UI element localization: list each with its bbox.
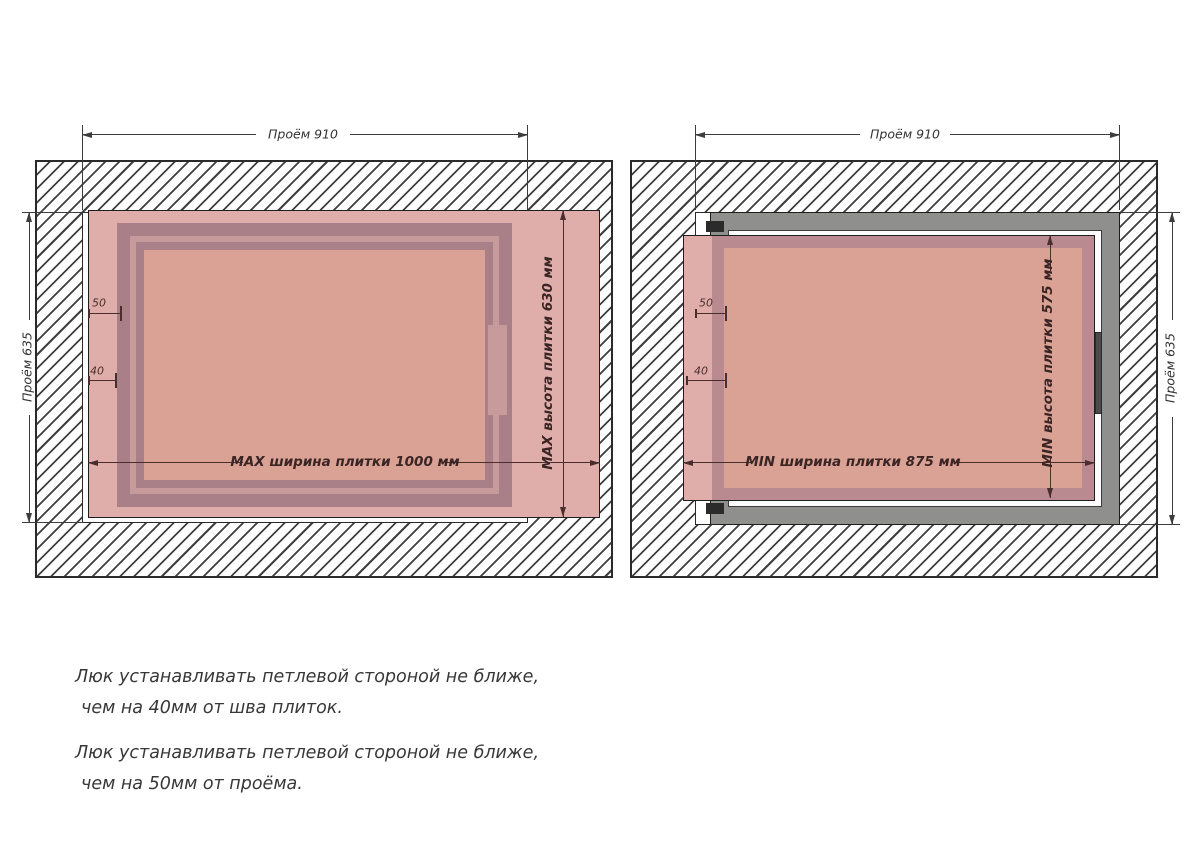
dim-label-tile-width: MIN ширина плитки 875 мм [745,454,960,470]
arrow-right-icon [590,460,600,466]
dim-line [695,313,726,314]
hinge-bottom [706,503,724,514]
arrow-down-icon [1169,515,1175,525]
dim-line [1172,212,1173,320]
dim-label-tile-height: MIN высота плитки 575 мм [1040,259,1056,468]
arrow-right-icon [1110,132,1120,138]
dim-label-opening-width: Проём 910 [870,127,940,142]
tick [725,306,727,321]
dim-line [1172,417,1173,525]
note-hinge-seam: Люк устанавливать петлевой стороной не б… [75,662,539,724]
door-panel [144,250,485,480]
tick [88,376,90,385]
arrow-left-icon [683,460,693,466]
tick [120,306,122,321]
door-frame-inner-band [136,242,493,488]
arrow-left-icon [695,132,705,138]
arrow-up-icon [560,210,566,220]
tick [686,376,688,385]
arrow-left-icon [88,460,98,466]
arrow-down-icon [26,513,32,523]
dim-line [88,462,243,463]
note-line: Люк устанавливать петлевой стороной не б… [75,738,539,769]
dim-line [563,210,564,517]
dim-label-opening-height: Проём 635 [1163,333,1178,403]
dim-line [683,462,753,463]
dim-line [447,462,600,463]
door-handle [1095,332,1102,414]
arrow-down-icon [560,507,566,517]
dim-label-tile-height: MAX высота плитки 630 мм [540,256,556,469]
dim-label-50: 50 [92,297,106,310]
arrow-right-icon [518,132,528,138]
arrow-down-icon [1047,488,1053,498]
dim-line [950,134,1120,135]
dim-label-40: 40 [694,365,708,378]
arrow-up-icon [1169,212,1175,222]
dim-line [88,313,121,314]
arrow-up-icon [1047,235,1053,245]
tick [115,373,117,388]
tick [725,373,727,388]
arrow-up-icon [26,212,32,222]
dim-label-opening-height: Проём 635 [20,332,35,402]
door-panel [724,248,1082,488]
dim-line [695,134,860,135]
dim-label-50: 50 [699,297,713,310]
tick [88,309,90,318]
note-line: чем на 40мм от шва плиток. [75,693,539,724]
arrow-left-icon [82,132,92,138]
dim-line [88,380,116,381]
dim-label-opening-width: Проём 910 [268,127,338,142]
handle-recess [488,325,507,415]
note-line: чем на 50мм от проёма. [75,769,539,800]
note-line: Люк устанавливать петлевой стороной не б… [75,662,539,693]
dim-label-tile-width: MAX ширина плитки 1000 мм [230,454,459,470]
dim-line [82,134,256,135]
dim-line [686,380,726,381]
tick [695,309,697,318]
dim-line [350,134,528,135]
dim-line [955,462,1095,463]
dim-label-40: 40 [90,365,104,378]
dim-line [29,212,30,320]
drawing-canvas: Проём 910 Проём 635 50 40 [0,0,1200,845]
tile-max [88,210,600,518]
arrow-right-icon [1085,460,1095,466]
note-hinge-opening: Люк устанавливать петлевой стороной не б… [75,738,539,800]
hinge-top [706,221,724,232]
dim-line [29,415,30,523]
